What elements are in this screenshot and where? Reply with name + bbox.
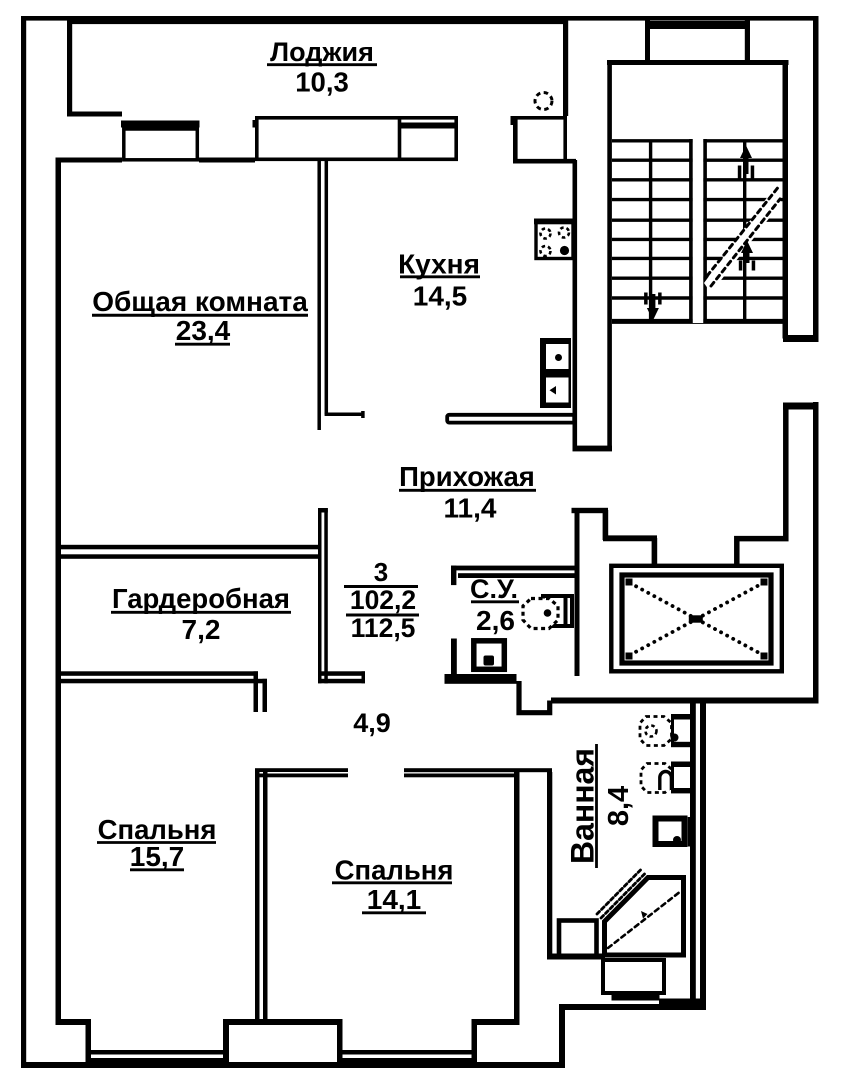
svg-text:Кухня: Кухня [398,249,480,280]
svg-text:102,2: 102,2 [350,585,416,615]
svg-text:Спальня: Спальня [335,855,454,886]
svg-text:11,4: 11,4 [444,493,497,524]
svg-text:Общая комната: Общая комната [92,286,308,317]
svg-text:С.У.: С.У. [470,574,518,604]
svg-text:Прихожая: Прихожая [399,461,535,492]
svg-text:2,6: 2,6 [476,605,515,636]
svg-text:14,1: 14,1 [367,884,422,915]
svg-text:23,4: 23,4 [176,315,231,346]
svg-text:8,4: 8,4 [603,786,635,826]
svg-text:3: 3 [374,557,388,587]
svg-text:4,9: 4,9 [353,708,391,738]
svg-text:Гардеробная: Гардеробная [112,583,290,614]
svg-text:Лоджия: Лоджия [270,37,374,67]
svg-text:10,3: 10,3 [295,67,349,98]
svg-text:7,2: 7,2 [182,614,221,645]
svg-text:112,5: 112,5 [351,613,416,643]
svg-text:14,5: 14,5 [413,281,468,312]
svg-text:15,7: 15,7 [130,841,185,872]
